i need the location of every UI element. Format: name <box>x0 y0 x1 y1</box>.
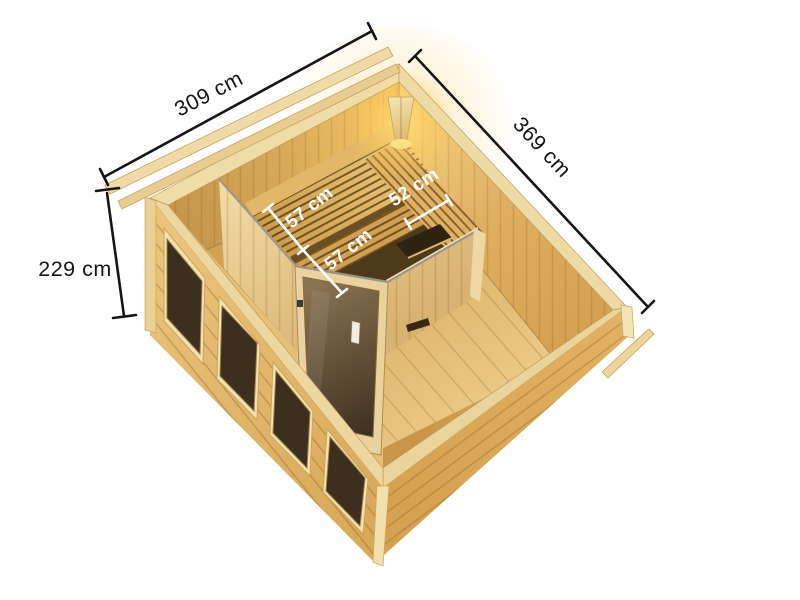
dimension-label-width: 309 cm <box>171 66 247 121</box>
corner-post-west <box>145 197 156 333</box>
dimension-height <box>96 188 136 318</box>
dimension-label-height: 229 cm <box>38 257 112 281</box>
dimension-label-depth: 369 cm <box>508 112 576 182</box>
product-image: 309 cm 369 cm 229 cm 57 cm 57 cm 52 cm <box>0 0 800 600</box>
door-handle <box>351 321 360 344</box>
door-hinge-top <box>297 300 303 307</box>
dimension-line-height <box>107 193 124 316</box>
corner-post-east <box>621 305 634 338</box>
sauna-cabin-illustration: 309 cm 369 cm 229 cm 57 cm 57 cm 52 cm <box>0 0 800 600</box>
